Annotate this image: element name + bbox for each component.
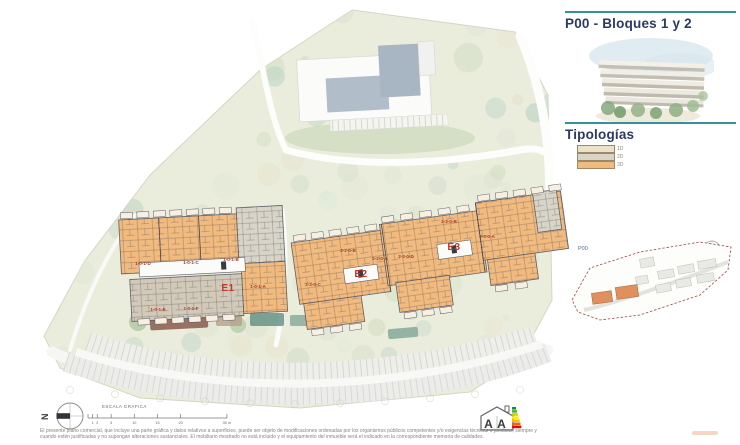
scale-title: ESCALA GRÁFICA [102, 404, 147, 409]
unit-label: 1-0-1-E [150, 307, 165, 312]
legend-item: 1D [577, 145, 623, 153]
disclaimer-line-2: cuando estén justificadas y no supongan … [40, 435, 644, 441]
divider [565, 11, 736, 13]
legend-label: 1D [617, 147, 623, 152]
scale-tick-label: 5 [110, 421, 112, 425]
unit-label: 1-0-1-D [135, 261, 151, 266]
scale-tick-label: 2 [96, 421, 98, 425]
unit-label: 2-3-0-D [398, 254, 414, 259]
block-label: E2 [354, 269, 367, 280]
scale-ticks: 12510152030 m [88, 414, 231, 425]
scale-tick-label: 15 [155, 421, 159, 425]
legend-swatch [577, 145, 615, 153]
unit-label: 1-0-1-C [183, 260, 199, 265]
north-letter: N [40, 414, 50, 421]
unit-label: 2-3-0-A [479, 234, 495, 239]
legend-item: 2D [577, 153, 623, 161]
unit-label: 2-2-0-A [372, 256, 388, 261]
disclaimer: El presente plano comercial, que incluye… [40, 429, 644, 440]
typology-legend: 1D2D3D [577, 145, 623, 169]
legend-item: 3D [577, 161, 623, 169]
legend-label: 2D [617, 155, 623, 160]
keymap-label: P00 [578, 246, 588, 252]
legend-swatch [577, 161, 615, 169]
unit-label: 1-0-1-B [223, 257, 239, 262]
legend-label: 3D [617, 163, 623, 168]
unit-label: 2-3-0-C [305, 282, 321, 287]
scale-tick-label: 1 [92, 421, 94, 425]
energy-bars-icon [512, 407, 521, 428]
unit-label: 1-0-1-F [183, 306, 198, 311]
unit-label: 1-0-1-A [250, 284, 266, 289]
divider [565, 122, 736, 124]
scale-tick-label: 20 [178, 421, 182, 425]
tipologias-heading: Tipologías [565, 127, 634, 142]
unit-label: 2-3-0-B [441, 219, 457, 224]
version-mark [692, 431, 718, 435]
block-label: E1 [221, 283, 234, 294]
plan-sheet: 1-0-1-D1-0-1-C1-0-1-B1-0-1-A1-0-1-E1-0-1… [0, 0, 740, 445]
block-label: E3 [447, 242, 460, 253]
key-map: P00 N [570, 232, 738, 344]
unit-label: 2-2-0-B [340, 248, 356, 253]
compass: N [40, 403, 83, 429]
scale-tick-label: 10 [132, 421, 136, 425]
scale-tick-label: 30 m [223, 421, 231, 425]
legend-swatch [577, 153, 615, 161]
page-title: P00 - Bloques 1 y 2 [565, 16, 737, 31]
building-render-image [588, 36, 714, 124]
